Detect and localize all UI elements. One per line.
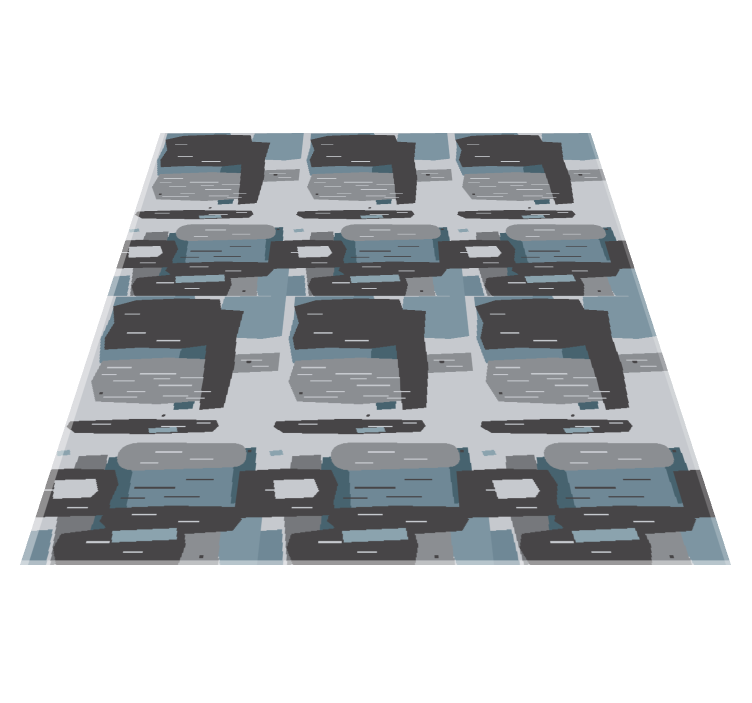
rug-pattern-svg	[20, 133, 731, 565]
product-image-canvas	[0, 0, 752, 703]
rug-pattern-fill	[20, 133, 731, 565]
rug	[20, 133, 731, 565]
